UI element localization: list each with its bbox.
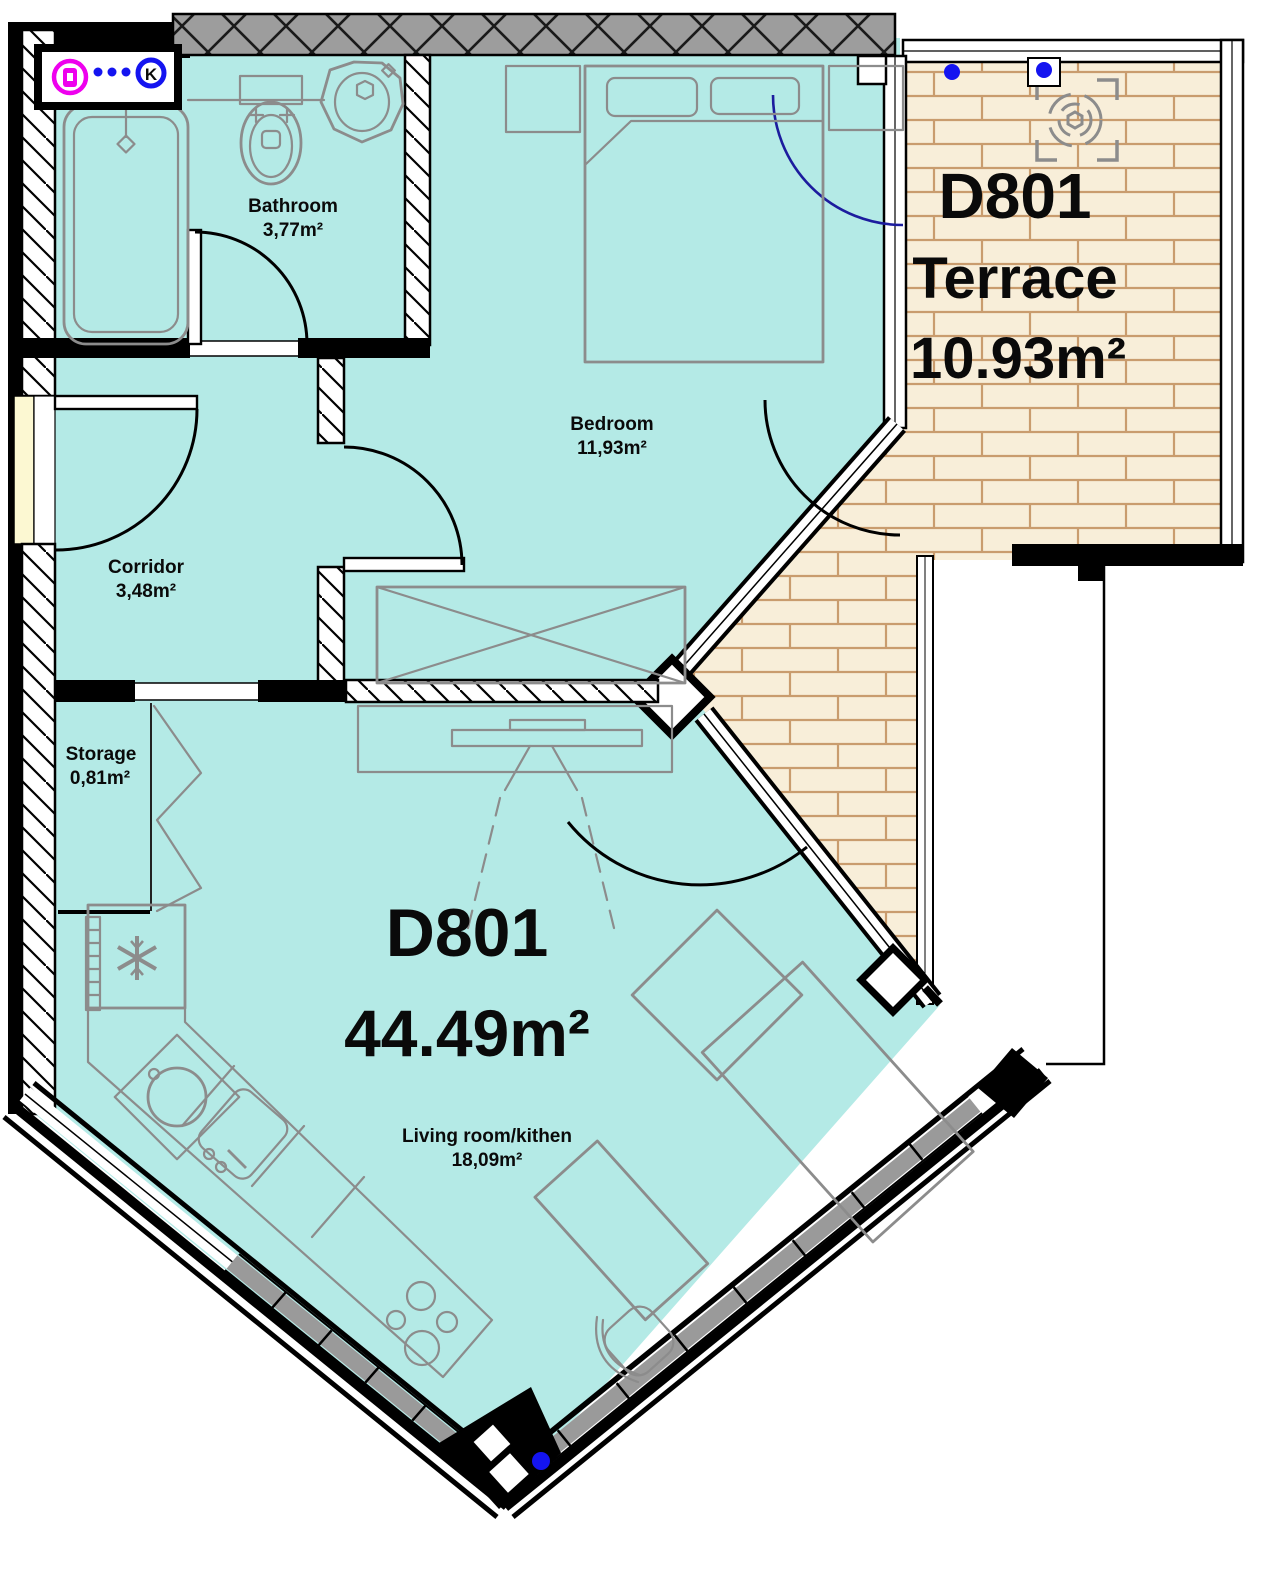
glass-wall-cap xyxy=(858,56,886,84)
wall-corridor-bedroom-lower xyxy=(318,567,344,682)
room-area-bedroom: 11,93m² xyxy=(577,438,647,459)
room-area-bathroom: 3,77m² xyxy=(263,220,323,241)
wall-left-hatch-lower xyxy=(22,544,55,1114)
terrace-area-label: 10.93m² xyxy=(910,326,1126,391)
k-marker: K xyxy=(138,60,164,86)
room-label-bathroom: Bathroom xyxy=(248,196,338,217)
floor-plan-page: K Bathroom 3,77m² Bedroom 11,93m² Corrid… xyxy=(0,0,1280,1582)
blue-dot-terrace-2 xyxy=(1036,62,1052,78)
room-label-corridor: Corridor xyxy=(108,557,185,578)
terrace-wall-step xyxy=(1078,566,1105,581)
bathroom-threshold xyxy=(190,341,298,356)
room-area-living: 18,09m² xyxy=(452,1150,523,1171)
entry-threshold-white xyxy=(34,396,55,544)
wall-bathroom-right xyxy=(405,55,430,345)
panel-dot-1 xyxy=(94,68,103,77)
wall-bathroom-bottom-left xyxy=(22,338,190,358)
electrical-panel-icon xyxy=(54,61,86,93)
room-area-corridor: 3,48m² xyxy=(116,581,176,602)
terrace-wall-bottom xyxy=(1012,544,1243,566)
wall-corridor-bottom-left xyxy=(55,680,135,702)
blue-dot-tip xyxy=(532,1452,550,1470)
room-label-bedroom: Bedroom xyxy=(570,414,653,435)
wall-left-outer xyxy=(8,22,22,1114)
unit-id-label: D801 xyxy=(386,895,549,971)
wall-se-corner-block xyxy=(978,1048,1048,1118)
floor-plan: K Bathroom 3,77m² Bedroom 11,93m² Corrid… xyxy=(0,0,1280,1582)
unit-area-label: 44.49m² xyxy=(344,996,590,1070)
blue-dot-terrace-1 xyxy=(944,64,960,80)
panel-dot-3 xyxy=(122,68,131,77)
wall-bathroom-bottom-right xyxy=(298,338,430,358)
corridor-living-threshold xyxy=(135,683,258,700)
terrace-unit-label: D801 xyxy=(939,160,1092,232)
room-area-storage: 0,81m² xyxy=(70,768,130,789)
panel-dot-2 xyxy=(108,68,117,77)
k-marker-label: K xyxy=(145,65,158,84)
room-label-living: Living room/kithen xyxy=(402,1126,572,1147)
wall-top-crosshatch xyxy=(173,14,895,55)
utility-panel: K xyxy=(38,48,178,106)
wall-corridor-bedroom-upper xyxy=(318,358,344,443)
neighbor-boundary-line xyxy=(1046,566,1104,1064)
room-label-storage: Storage xyxy=(66,744,137,765)
terrace-name-label: Terrace xyxy=(912,246,1117,311)
wall-corridor-bottom-right xyxy=(258,680,346,702)
entry-threshold xyxy=(14,396,34,544)
